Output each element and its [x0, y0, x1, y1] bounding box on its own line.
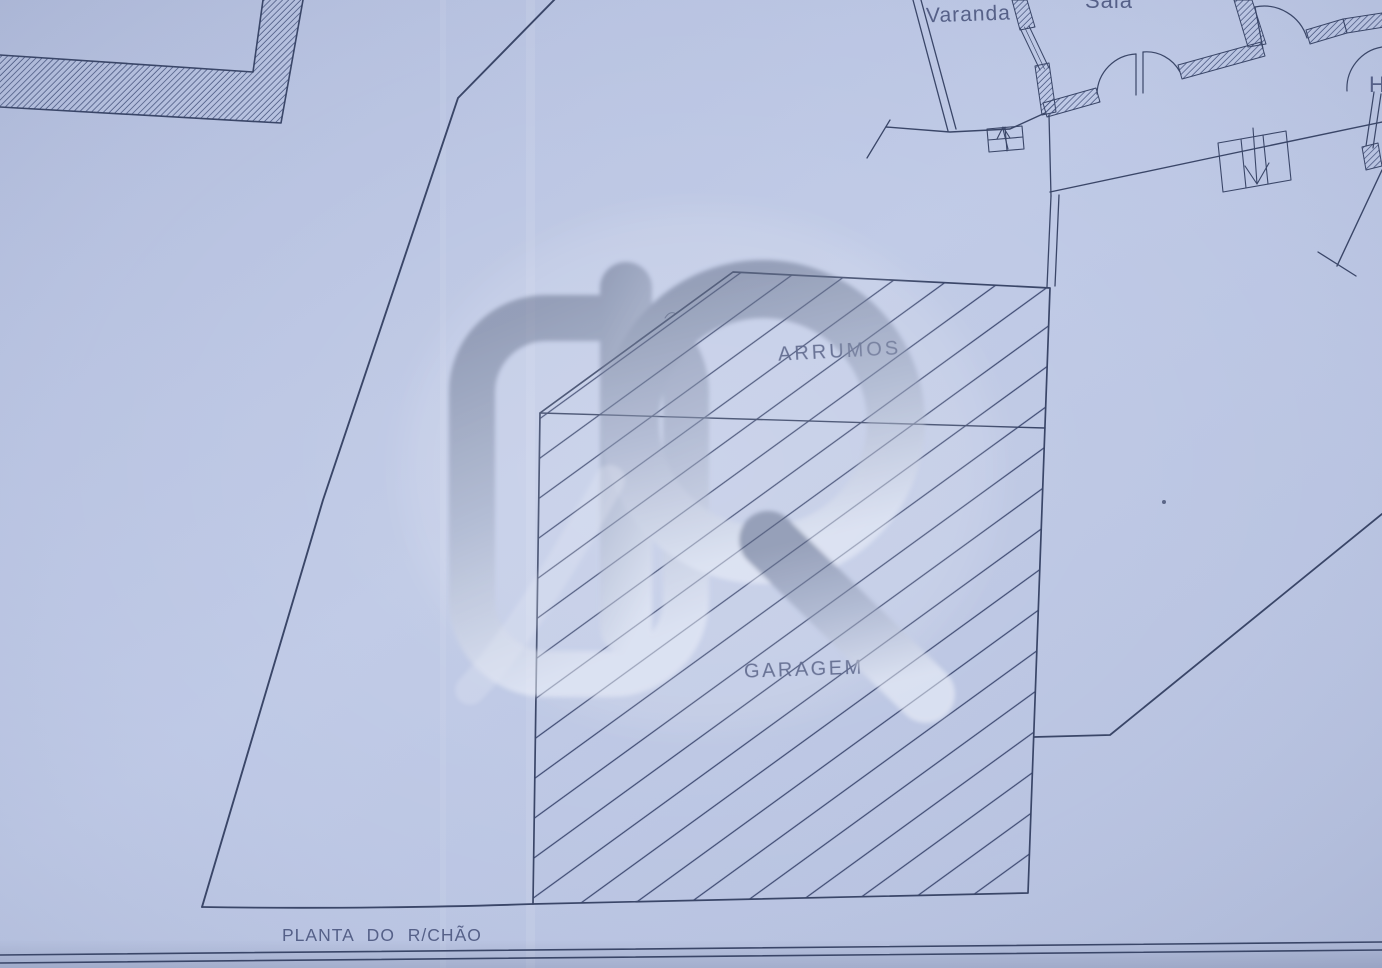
- photo-bottom-shadow: [0, 940, 1382, 968]
- plan-canvas: Varanda Sala H ARRUMOS GARAGEM PLANTA DO…: [0, 0, 1382, 968]
- room-label-varanda: Varanda: [926, 1, 1012, 27]
- right-wing-wall-stub: [1362, 143, 1382, 170]
- floor-plan-photo: Varanda Sala H ARRUMOS GARAGEM PLANTA DO…: [0, 0, 1382, 968]
- room-label-sala: Sala: [1085, 0, 1133, 13]
- room-label-hall-partial: H: [1369, 72, 1382, 97]
- ink-speck: [1162, 500, 1166, 504]
- watermark-r-logo: [400, 210, 1000, 730]
